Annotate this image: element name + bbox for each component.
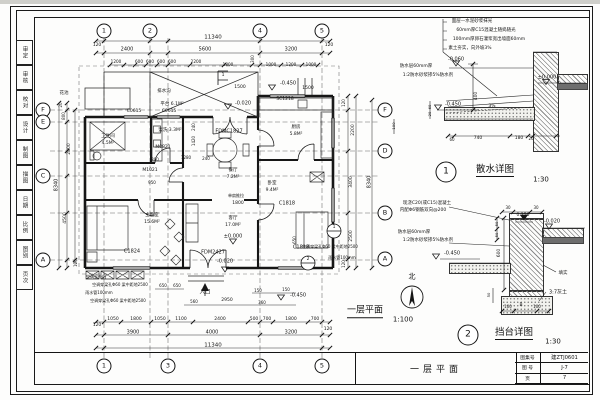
drawing-text: 餐厅	[229, 169, 238, 174]
strip-label: 页次	[16, 265, 33, 290]
detail-text: 100	[533, 305, 541, 309]
title-block-row: 页7	[515, 374, 588, 384]
drawing-text: 11340	[204, 35, 222, 41]
drawing-text: 2	[307, 258, 310, 263]
title-block-label: 图集号	[515, 353, 541, 362]
drawing-sheet: 一层平面 图集号建ZTJ0601图 号J-7页7 113401202400560…	[0, 0, 600, 400]
drawing-text: 雨水管100mm	[328, 256, 355, 260]
detail-text: B	[519, 304, 522, 309]
drawing-text: 3200	[285, 48, 298, 53]
title-block-value: J-7	[541, 363, 588, 372]
drawing-text: 150	[282, 288, 290, 292]
opening-label: M1021	[142, 169, 157, 174]
opening-label: FDM2427	[201, 251, 225, 256]
drawing-text: 1420	[192, 136, 196, 146]
detail-text: 防水层60mm厚	[398, 231, 431, 236]
drawing-text: 1100	[175, 318, 186, 323]
drawing-text: 600	[146, 60, 154, 64]
terrace-and-site	[85, 72, 312, 281]
detail-text: 180	[515, 137, 524, 142]
drawing-text: 空调穿梁孔Φ60 梁中距地2500	[90, 299, 146, 303]
strip-label-text: 审定	[21, 46, 29, 59]
drawing-text: 300	[251, 55, 255, 63]
drawing-text: 1050	[107, 318, 118, 323]
strip-label: 校对	[16, 90, 33, 115]
drawing-text: 600	[168, 60, 176, 64]
detail-text: 50	[495, 222, 499, 227]
detail-text: ±0.000	[538, 76, 557, 81]
drawing-text: 1280	[181, 156, 191, 160]
detail-text: 1:2防水砂浆掺5%防水剂	[403, 239, 453, 244]
drawing-text: 1500	[234, 86, 245, 91]
drawing-text: 360	[258, 301, 266, 305]
drawing-text: 客厅	[229, 217, 238, 222]
opening-label: M0821	[155, 146, 170, 151]
drawing-text: 500	[250, 318, 259, 323]
room-label: 15.6M²	[144, 221, 160, 226]
strip-label: 审核	[16, 65, 33, 90]
strip-label-text: 图别	[21, 246, 29, 259]
doors	[138, 117, 314, 268]
title-bar: 一层平面 图集号建ZTJ0601图 号J-7页7	[34, 352, 588, 384]
detail-text: -0.060	[448, 58, 464, 63]
drawing-text: ±0.000	[224, 235, 243, 240]
title-block-row: 图 号J-7	[515, 363, 588, 373]
room-label: 平台 6.1M²	[160, 103, 183, 108]
drawing-text: 1800	[130, 318, 141, 323]
detail-text: 0.150	[517, 214, 530, 219]
grid-bubble-bottom: 5	[315, 359, 330, 374]
detail-text: 20	[528, 137, 533, 141]
detail-text: 30	[533, 206, 538, 210]
opening-label: C0615	[162, 110, 177, 115]
drawing-text: 650	[293, 236, 297, 244]
detail-text: 素土夯实，向外坡3%	[448, 47, 491, 52]
drawing-text: 2200	[352, 124, 357, 135]
drawing-text: 8340	[55, 179, 60, 192]
detail-text: -0.450	[445, 103, 461, 108]
drawing-text: 主卧室	[145, 214, 159, 219]
room-label: 7.2M²	[227, 176, 240, 181]
drawing-text: 2200	[191, 60, 202, 64]
grid-bubble-bottom: 3	[161, 359, 176, 374]
drawing-text: 排水沟	[157, 90, 171, 95]
strip-label-text: 制图	[21, 146, 29, 159]
detail-text: 50	[487, 293, 491, 298]
drawing-text: 雨水管100mm	[85, 291, 112, 295]
detail-text: 100	[392, 122, 396, 129]
detail-number-bubble: 1	[436, 162, 457, 183]
detail-text: 740	[474, 137, 483, 142]
grid-bubble-top: 2	[143, 24, 158, 39]
plan-linework	[0, 0, 600, 400]
drawing-text: 120	[93, 324, 102, 329]
drawing-text: 厨房	[292, 126, 301, 131]
detail-text: 现浇C20(或C15)混凝土	[403, 202, 451, 207]
room-label: 9.4M²	[266, 189, 279, 194]
windows	[113, 95, 334, 270]
detail-text: 50	[495, 233, 499, 238]
drawing-text: 700	[311, 318, 320, 323]
title-block-table: 图集号建ZTJ0601图 号J-7页7	[515, 353, 588, 384]
grid-bubble-bottom: 4	[253, 359, 268, 374]
detail-text: 30	[505, 206, 510, 210]
detail-text: 防水层60mm厚	[400, 65, 433, 70]
drawing-text: 1000	[266, 63, 277, 67]
detail-text: 60	[428, 105, 432, 110]
drawing-text: 入口	[199, 290, 210, 296]
drawing-text: 240	[192, 123, 196, 131]
drawing-text: 560	[190, 300, 198, 304]
strip-label-text: 设计	[21, 121, 29, 134]
drawing-text: 1800	[232, 202, 243, 207]
sheet-title: 一层平面	[355, 353, 517, 384]
detail-text: 100	[504, 305, 512, 309]
drawing-text: 800	[62, 112, 66, 120]
drawing-text: 240	[202, 157, 210, 161]
drawing-text: 1	[333, 226, 336, 231]
opening-label: C1818	[279, 202, 295, 207]
strip-label: 制图	[16, 140, 33, 165]
drawing-text: 4500	[64, 212, 69, 223]
drawing-text: 2400	[214, 318, 225, 323]
drawing-text: 650	[159, 284, 167, 288]
opening-label: FDMC1827	[215, 130, 242, 135]
detail-text: 填实	[559, 272, 568, 277]
grid-bubble-right: F	[378, 103, 393, 118]
strip-label: 描图	[16, 165, 33, 190]
drawing-text: 20	[59, 102, 63, 107]
grid-bubble-top: 1	[97, 24, 112, 39]
strip-label-text: 校对	[21, 96, 29, 109]
title-block-label: 图 号	[515, 363, 541, 372]
grid-bubble-left: E	[36, 115, 51, 130]
title-block-value: 7	[541, 374, 588, 383]
drawing-text: 1050	[154, 318, 165, 323]
strip-label-text: 描图	[21, 171, 29, 184]
title-block-label: 页	[515, 374, 541, 383]
detail-text: 面层—水泥砂浆抹光	[452, 20, 493, 25]
drawing-text: 4000	[206, 331, 219, 336]
drawing-text: 11340	[204, 343, 222, 349]
drawing-text: 950	[148, 181, 156, 185]
strip-label-text: 比例	[21, 221, 29, 234]
drawing-text: 2400	[121, 48, 134, 53]
drawing-text: 1200	[111, 60, 122, 64]
drawing-text: 2950	[221, 299, 232, 304]
title-block-row: 图集号建ZTJ0601	[515, 353, 588, 363]
drawing-text: 一层平面	[347, 306, 383, 318]
strip-label-text: 日期	[21, 196, 29, 209]
drawing-text: 卫生间	[101, 135, 115, 140]
detail-text: 1:30	[545, 339, 561, 346]
detail-text: -0.450	[444, 252, 460, 257]
room-label: 5.8M²	[290, 133, 303, 138]
drawing-text: 1800	[223, 63, 234, 67]
drawing-text: 120	[342, 99, 346, 107]
opening-label: SC1218	[276, 98, 293, 103]
drawing-text: 1800	[285, 318, 296, 323]
room-label: 4.5M²	[102, 142, 115, 147]
drawing-text: 120	[74, 259, 78, 267]
detail-number-bubble: 2	[458, 325, 479, 346]
grid-bubble-left: A	[36, 253, 51, 268]
strip-label: 审定	[16, 40, 33, 65]
drawing-text: 120	[324, 328, 333, 333]
detail-text: 散水详图	[476, 165, 514, 177]
opening-label: C0615	[127, 110, 142, 115]
drawing-text: 空调室外机	[86, 275, 106, 279]
detail-text: 3%	[488, 105, 495, 110]
detail-text: 1:2防水砂浆掺5%防水剂	[403, 74, 453, 79]
drawing-text: 1000	[306, 63, 317, 67]
drawing-text: -0.450	[290, 294, 306, 299]
room-label: 盥洗 3.3M²	[158, 129, 181, 134]
drawing-text: 3400	[350, 176, 355, 187]
drawing-text: 120	[325, 44, 334, 49]
drawing-text: 空调穿梁孔Φ60 梁中距地2500	[302, 245, 358, 249]
drawing-text: 空调穿梁孔Φ60 梁中距地2500	[92, 283, 148, 287]
detail-text: -0.020	[544, 220, 560, 225]
drawing-text: -0.020	[217, 260, 233, 265]
drawing-text: 120	[342, 260, 346, 268]
drawing-text: 700	[263, 318, 272, 323]
detail-text: 20	[428, 112, 432, 117]
title-block-value: 建ZTJ0601	[541, 353, 588, 362]
drawing-text: 花池	[60, 92, 69, 97]
drawing-text: 800	[151, 158, 159, 162]
strip-label-text: 审核	[21, 71, 29, 84]
grid-bubble-right: B	[378, 206, 393, 221]
drawing-text: 1:100	[393, 317, 413, 324]
detail-text: 400	[475, 92, 480, 101]
detail-text: 1:30	[533, 177, 549, 184]
grid-bubble-top: 4	[253, 24, 268, 39]
grid-bubble-right: D	[378, 144, 393, 159]
drawing-text: 600	[135, 60, 143, 64]
drawing-text: 1500	[302, 87, 313, 92]
drawing-text: 120	[93, 44, 102, 49]
grid-bubble-top: 5	[315, 24, 330, 39]
detail-text: 60	[449, 138, 454, 142]
drawing-text: 卧室	[268, 182, 277, 187]
detail-text: 100mm厚卵石灌浆宽出墙面60mm	[453, 38, 525, 43]
drawing-text: 150	[254, 289, 262, 293]
drawing-text: 8340	[368, 176, 373, 189]
strip-label: 日期	[16, 190, 33, 215]
grid-bubble-bottom: 1	[97, 359, 112, 374]
opening-label: C1824	[124, 250, 140, 255]
grid-bubble-right: A	[378, 252, 393, 267]
detail-text: 600	[498, 249, 503, 258]
drawing-text: 2500	[350, 230, 355, 241]
detail-text: 60mm厚C15混凝土随捣随光	[456, 29, 515, 34]
drawing-text: 3200	[285, 331, 298, 336]
grid-bubble-left: C	[36, 169, 51, 184]
drawing-text: 北	[409, 274, 416, 281]
drawing-text: 600	[157, 60, 165, 64]
drawing-text: 1200	[286, 63, 297, 67]
room-label: 17.0M²	[225, 224, 241, 229]
drawing-text: 650	[173, 284, 181, 288]
drawing-text: 3900	[127, 331, 140, 336]
strip-label: 比例	[16, 215, 33, 240]
drawing-text: 2800	[68, 143, 73, 154]
drawing-text: -0.020	[235, 102, 251, 107]
strip-label: 图别	[16, 240, 33, 265]
north-arrow	[401, 286, 423, 308]
drawing-text: 单扇推拉	[228, 194, 244, 198]
drawing-text: -0.450	[280, 82, 296, 87]
detail-text: 挡台详图	[495, 328, 533, 340]
detail-text: 3:7灰土	[549, 291, 567, 296]
drawing-text: 5600	[199, 48, 212, 53]
strip-label: 设计	[16, 115, 33, 140]
drawing-text: 1	[222, 74, 225, 79]
strip-label-text: 页次	[21, 271, 29, 284]
detail-text: 内配Φ6钢筋双向@200	[400, 209, 447, 214]
